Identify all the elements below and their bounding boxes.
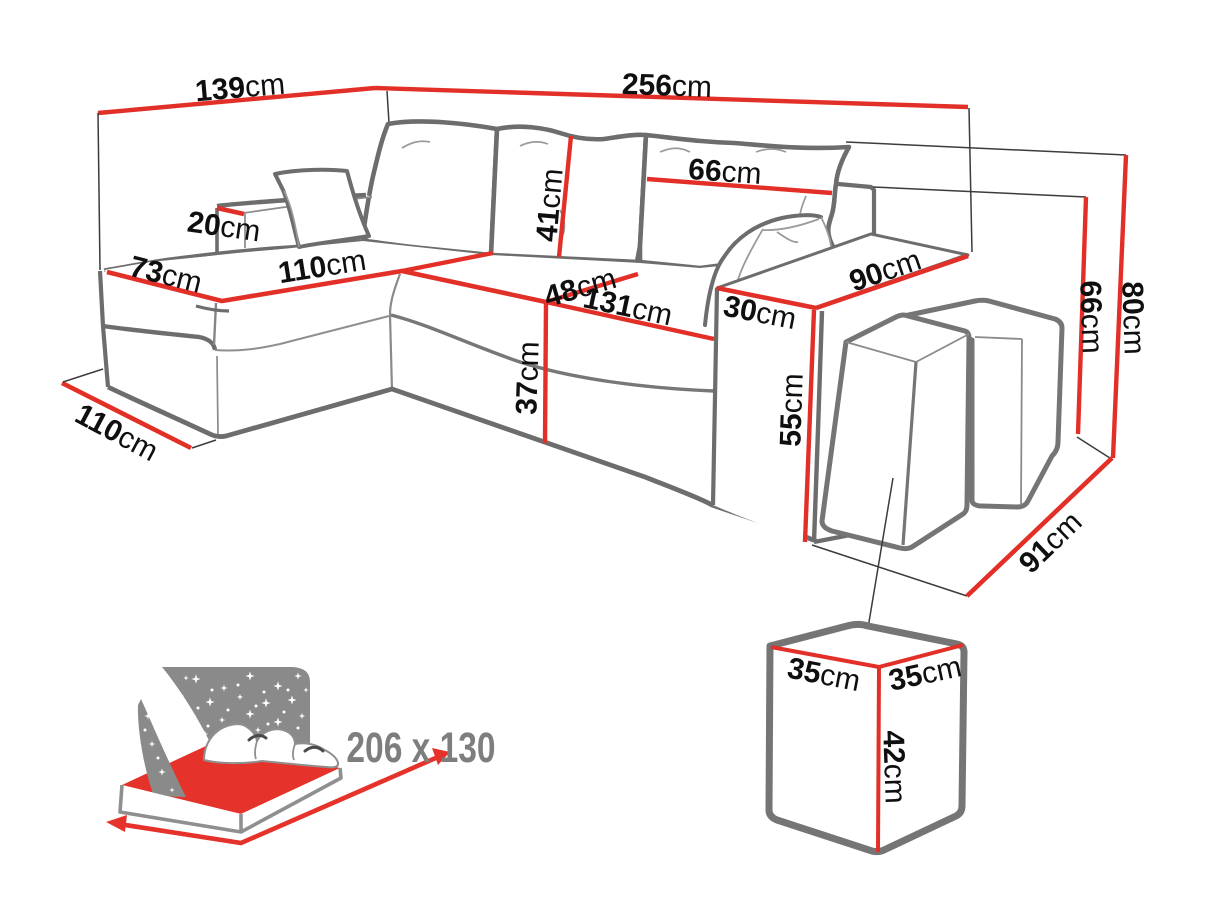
svg-text:42cm: 42cm bbox=[876, 730, 912, 804]
svg-text:80cm: 80cm bbox=[1115, 281, 1151, 355]
svg-text:66cm: 66cm bbox=[687, 153, 762, 191]
svg-text:41cm: 41cm bbox=[530, 167, 569, 243]
svg-text:206 x 130: 206 x 130 bbox=[346, 724, 495, 772]
svg-text:37cm: 37cm bbox=[510, 341, 546, 415]
svg-text:55cm: 55cm bbox=[774, 373, 810, 447]
svg-text:66cm: 66cm bbox=[1073, 280, 1109, 354]
svg-text:256cm: 256cm bbox=[621, 68, 712, 104]
